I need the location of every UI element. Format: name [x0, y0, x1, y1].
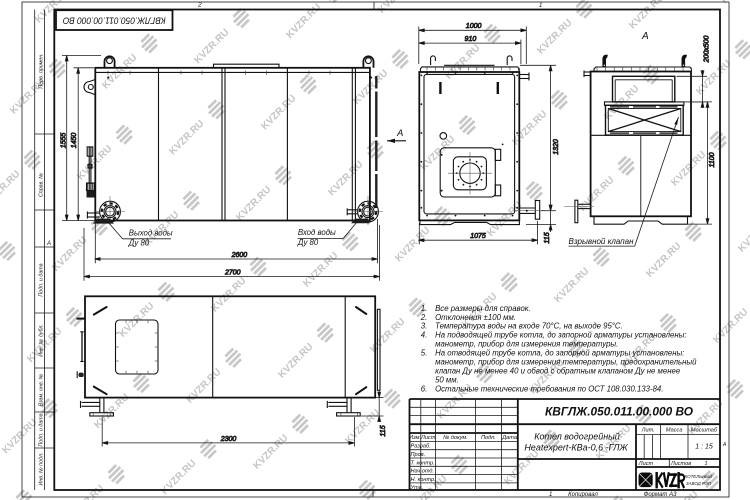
svg-text:А: А [396, 128, 403, 139]
svg-text:А: А [722, 442, 727, 448]
svg-text:KVZR.RU: KVZR.RU [326, 159, 365, 198]
svg-text:3.: 3. [421, 322, 428, 331]
svg-text:2300: 2300 [220, 436, 237, 443]
svg-text:А: А [46, 241, 51, 247]
svg-text:Подп. и дата: Подп. и дата [39, 263, 45, 296]
svg-text:KVZR.RU: KVZR.RU [535, 17, 574, 56]
svg-text:KVZR.RU: KVZR.RU [510, 109, 549, 148]
svg-text:Дата: Дата [501, 435, 517, 441]
svg-text:Изм.: Изм. [409, 435, 421, 441]
svg-text:2600: 2600 [231, 252, 248, 259]
svg-text:115: 115 [380, 425, 387, 436]
svg-text:KVZR.RU: KVZR.RU [711, 307, 750, 346]
svg-text:Лист: Лист [638, 461, 654, 467]
svg-text:KVZR.RU: KVZR.RU [343, 407, 382, 446]
svg-text:Вход воды: Вход воды [298, 228, 336, 237]
svg-text:50 мм.: 50 мм. [435, 375, 459, 384]
svg-text:KVZR.RU: KVZR.RU [167, 118, 206, 157]
svg-text:Ду 80: Ду 80 [128, 238, 150, 247]
svg-text:KVZR.RU: KVZR.RU [502, 448, 541, 487]
svg-text:Инв. № дубл.: Инв. № дубл. [39, 324, 45, 357]
svg-text:Справ. №: Справ. № [39, 173, 45, 197]
svg-text:Лит.: Лит. [641, 428, 655, 434]
svg-text:1: 1 [549, 492, 552, 498]
svg-text:KVZR.RU: KVZR.RU [192, 27, 231, 66]
svg-text:KVZR.RU: KVZR.RU [276, 341, 315, 380]
svg-text:Разраб.: Разраб. [411, 444, 431, 450]
svg-text:КВГЛЖ.050.011.00.000 ВО: КВГЛЖ.050.011.00.000 ВО [63, 15, 166, 25]
svg-text:200х500: 200х500 [704, 35, 711, 63]
svg-text:115: 115 [544, 232, 551, 243]
svg-text:Подп. и дата: Подп. и дата [39, 413, 45, 446]
svg-text:Утв.: Утв. [410, 485, 424, 491]
svg-text:KVZR.RU: KVZR.RU [627, 0, 666, 31]
svg-text:Все размеры для справок.: Все размеры для справок. [435, 304, 531, 313]
svg-text:1555: 1555 [61, 133, 68, 149]
svg-text:Перв. примен.: Перв. примен. [39, 53, 45, 88]
svg-text:KVZR.RU: KVZR.RU [209, 275, 248, 314]
svg-text:KVZR.RU: KVZR.RU [644, 241, 683, 280]
svg-text:1000: 1000 [466, 23, 482, 30]
svg-text:Отклонения ±100 мм.: Отклонения ±100 мм. [435, 313, 516, 322]
svg-text:Н. контр.: Н. контр. [411, 477, 436, 483]
svg-text:KVZR.RU: KVZR.RU [694, 58, 733, 97]
svg-text:KVZR.RU: KVZR.RU [284, 2, 323, 41]
svg-text:910: 910 [465, 36, 477, 43]
svg-text:манометр, прибор для измерения: манометр, прибор для измерения температу… [435, 358, 697, 367]
svg-text:KVZR.RU: KVZR.RU [736, 215, 750, 254]
svg-text:Котел водогрейный: Котел водогрейный [534, 431, 620, 441]
svg-text:4.: 4. [421, 331, 428, 340]
svg-text:6.: 6. [421, 384, 428, 393]
svg-text:1: 1 [539, 3, 542, 9]
svg-text:KVZR.RU: KVZR.RU [351, 68, 390, 107]
svg-text:1: 1 [704, 461, 707, 467]
svg-text:Лист: Лист [420, 435, 436, 441]
svg-text:KVZR.RU: KVZR.RU [719, 0, 750, 6]
svg-text:На отводящей трубе котла, до з: На отводящей трубе котла, до запорной ар… [435, 349, 684, 358]
svg-text:Пров.: Пров. [411, 452, 426, 458]
svg-text:Формат А3: Формат А3 [644, 492, 677, 498]
svg-text:Взам. инв. №: Взам. инв. № [39, 373, 45, 406]
svg-text:клапан Ду не менее 40 и обвод: клапан Ду не менее 40 и обвод с обратным… [435, 366, 681, 375]
svg-text:1 : 15: 1 : 15 [695, 444, 713, 451]
svg-text:Т. контр.: Т. контр. [411, 460, 435, 466]
svg-text:манометр, прибор для измерения: манометр, прибор для измерения температу… [435, 340, 618, 349]
svg-text:Подп.: Подп. [481, 435, 496, 441]
svg-text:1100: 1100 [709, 152, 716, 167]
svg-text:2.: 2. [420, 313, 428, 322]
svg-text:КОТЕЛЬНЫЙ: КОТЕЛЬНЫЙ [685, 474, 713, 479]
svg-text:Масса: Масса [666, 428, 683, 434]
svg-text:Температура воды на входе 70°С: Температура воды на входе 70°С, на выход… [435, 322, 623, 331]
svg-text:1075: 1075 [470, 233, 486, 240]
svg-text:KVZR.RU: KVZR.RU [669, 149, 708, 188]
svg-text:KVZR.RU: KVZR.RU [552, 266, 591, 305]
svg-text:2700: 2700 [224, 269, 241, 276]
svg-text:Взрывной клапан: Взрывной клапан [569, 237, 635, 246]
svg-text:КВГЛЖ.050.011.00.000 ВО: КВГЛЖ.050.011.00.000 ВО [545, 406, 693, 419]
svg-text:KVZR.RU: KVZR.RU [393, 225, 432, 264]
svg-text:Heatexpert-КВа-0,6 -ГЛЖ: Heatexpert-КВа-0,6 -ГЛЖ [524, 443, 628, 453]
svg-text:KVZR.RU: KVZR.RU [259, 93, 298, 132]
svg-text:KVZR.RU: KVZR.RU [0, 417, 39, 456]
svg-text:5.: 5. [421, 349, 428, 358]
svg-text:А: А [641, 31, 649, 42]
svg-text:KVZR.RU: KVZR.RU [67, 483, 106, 500]
svg-text:KVZR.RU: KVZR.RU [368, 316, 407, 355]
svg-text:KVZR.RU: KVZR.RU [577, 175, 616, 214]
svg-text:KVZR.RU: KVZR.RU [301, 250, 340, 289]
svg-text:KVZR.RU: KVZR.RU [25, 326, 64, 365]
svg-text:№ докум.: № докум. [443, 435, 468, 441]
svg-text:KVZR.RU: KVZR.RU [159, 458, 198, 497]
svg-text:Масштаб: Масштаб [691, 428, 718, 434]
svg-text:Остальные технические требован: Остальные технические требования по ОСТ … [435, 384, 663, 393]
svg-text:Ду 80: Ду 80 [297, 238, 319, 247]
svg-text:На подводящей трубе котла, до: На подводящей трубе котла, до запорной а… [435, 331, 686, 340]
svg-text:KVZR.RU: KVZR.RU [0, 169, 23, 208]
svg-text:Выход воды: Выход воды [129, 228, 173, 237]
svg-text:1320: 1320 [553, 139, 560, 155]
svg-text:KVZR.RU: KVZR.RU [184, 367, 223, 406]
svg-text:Листов: Листов [670, 461, 691, 467]
svg-text:Нач.отд.: Нач.отд. [411, 469, 435, 475]
svg-text:Копировал: Копировал [568, 492, 598, 498]
svg-text:ЗАВОД РЭП: ЗАВОД РЭП [686, 481, 712, 486]
svg-text:2: 2 [197, 2, 202, 9]
svg-text:KVZR.RU: KVZR.RU [234, 184, 273, 223]
svg-text:1450: 1450 [71, 133, 78, 149]
svg-text:KVZR.RU: KVZR.RU [251, 433, 290, 472]
svg-text:KVZR.RU: KVZR.RU [443, 43, 482, 82]
svg-text:Инв. № подл.: Инв. № подл. [39, 453, 45, 486]
svg-text:1.: 1. [421, 304, 428, 313]
